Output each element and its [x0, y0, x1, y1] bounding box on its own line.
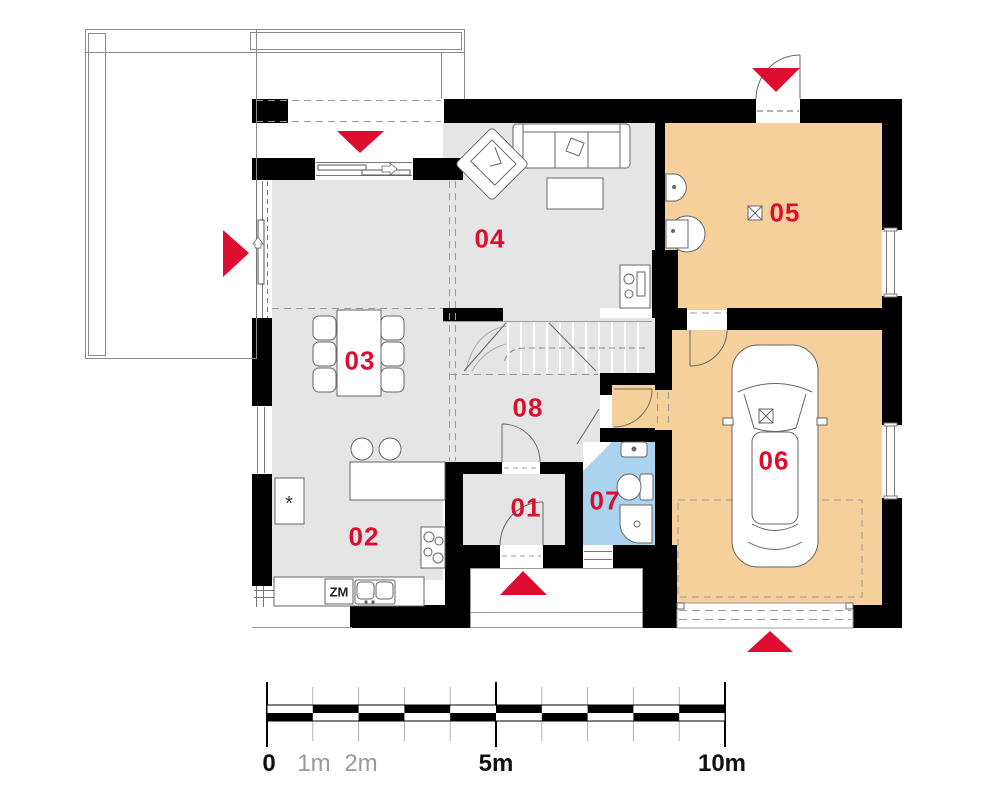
room-label-02: 02	[349, 522, 380, 553]
wall-bottom-2	[853, 605, 902, 628]
room-label-01: 01	[511, 493, 542, 524]
room-03-02-floor	[272, 180, 443, 580]
wall-slider-left	[252, 158, 315, 180]
wall-interior-v2	[655, 318, 672, 390]
slide-direction-arrow	[382, 163, 397, 175]
wall-slider-right	[413, 158, 463, 180]
window-06-right	[884, 423, 897, 499]
room-label-08: 08	[513, 393, 544, 424]
wall-top-a	[444, 99, 756, 123]
room-04-living-floor	[443, 122, 655, 308]
terrace-sliding-door	[257, 181, 268, 318]
window-left	[258, 407, 265, 473]
room-label-05: 05	[770, 198, 801, 229]
wall-right-1	[882, 99, 902, 230]
scale-label-1m: 1m	[297, 750, 330, 778]
wall-interior-v1	[655, 123, 665, 250]
wall-05-06-a	[672, 308, 687, 330]
window-05-right	[884, 228, 897, 297]
dishwasher-label: ZM	[330, 585, 349, 600]
room-label-07: 07	[590, 486, 621, 517]
scale-label-5m: 5m	[479, 750, 514, 778]
garage-door	[677, 603, 853, 628]
wall-kitchen-01	[445, 462, 463, 545]
wall-interior-v3	[655, 430, 672, 605]
entrance-arrow-terrace-side	[223, 230, 249, 277]
entrance-arrow-garage	[747, 631, 793, 652]
entrance-porch	[470, 568, 643, 628]
entrance-arrow-utility	[752, 68, 800, 92]
stairs-floor	[600, 318, 655, 373]
vestibule-garage-opening	[655, 390, 672, 430]
wall-top-stub	[252, 99, 288, 123]
wall-bathroom-top	[600, 428, 655, 442]
wall-left-2	[252, 474, 272, 586]
room-08-hall-floor	[443, 308, 600, 462]
scale-bar	[267, 682, 725, 747]
door-05-entrance	[756, 55, 800, 111]
wall-05-06-b	[727, 308, 902, 330]
entrance-arrow-terrace-canopy	[337, 131, 384, 153]
slide-direction-arrow	[253, 237, 263, 248]
room-label-06: 06	[759, 446, 790, 477]
wall-vestibule-top	[600, 373, 655, 385]
scale-label-2m: 2m	[344, 750, 377, 778]
room-label-04: 04	[475, 224, 506, 255]
wall-entry-3	[613, 545, 643, 568]
wall-porch-left	[445, 545, 470, 628]
vestibule-floor	[612, 385, 655, 428]
floor-plan: *	[0, 0, 1000, 799]
scale-label-0: 0	[262, 750, 275, 778]
room-label-03: 03	[345, 346, 376, 377]
wall-left-1	[252, 318, 272, 406]
wall-hall-01-b	[540, 462, 583, 474]
living-sliding-door-top	[316, 163, 412, 176]
scale-label-10m: 10m	[698, 750, 746, 778]
wall-vestibule-left	[600, 385, 612, 395]
wall-stairs-top	[443, 308, 503, 322]
wall-01-07	[565, 474, 583, 545]
window-07-bottom	[584, 552, 612, 560]
wall-entry-2	[543, 545, 583, 568]
